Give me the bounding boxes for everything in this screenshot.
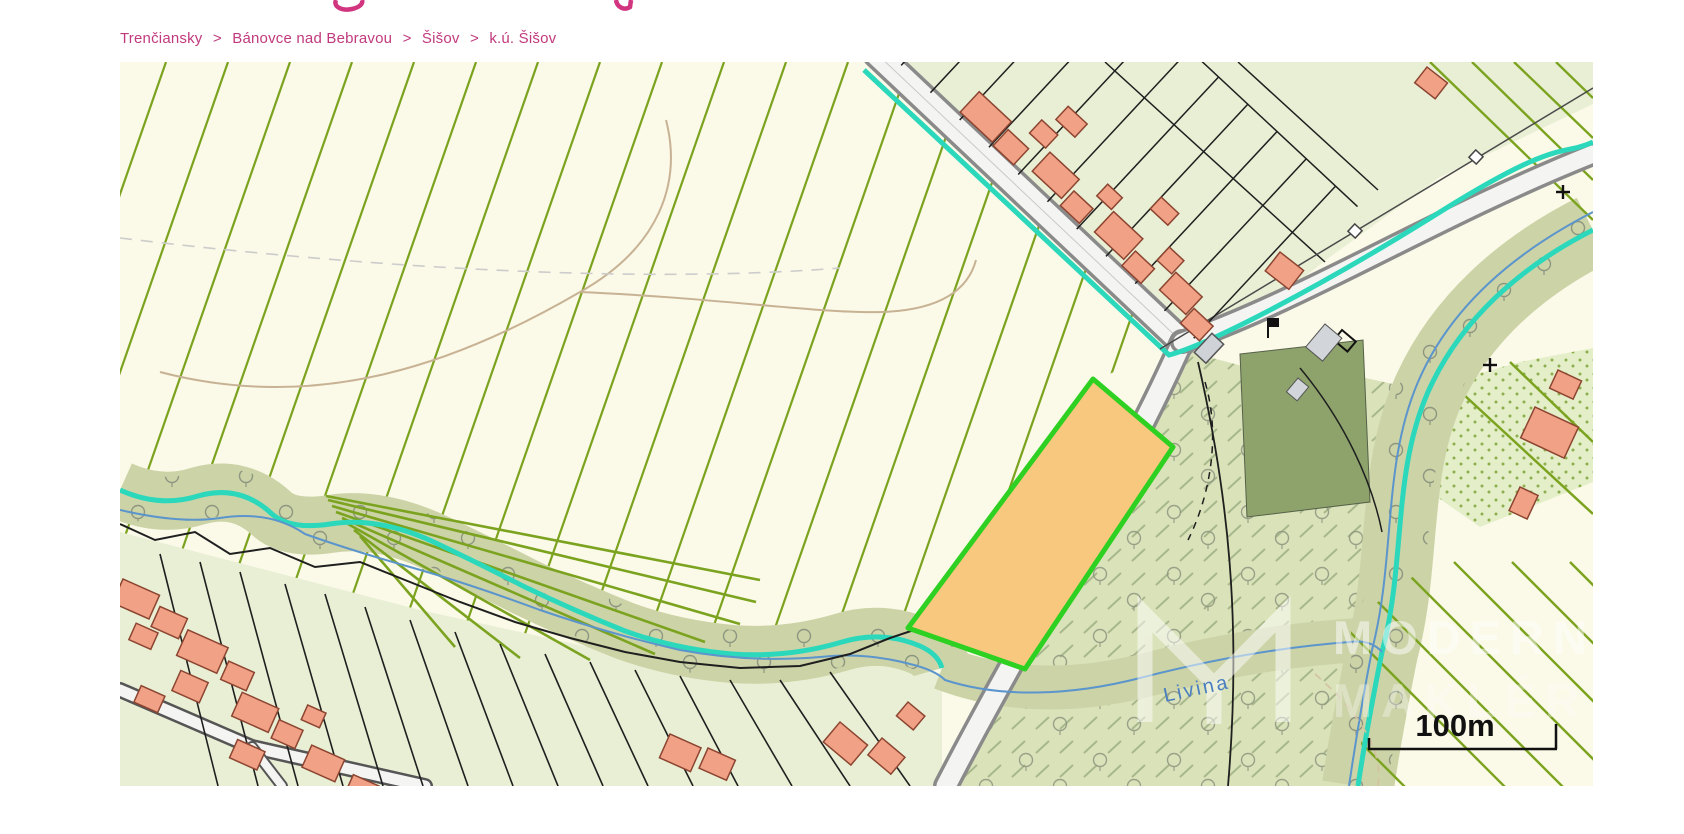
breadcrumb-municipality[interactable]: Šišov	[422, 30, 460, 47]
watermark-text-1: MODERN	[1333, 611, 1593, 664]
breadcrumb-separator: >	[213, 30, 222, 47]
breadcrumb-region[interactable]: Trenčiansky	[120, 30, 203, 47]
breadcrumb-separator: >	[470, 30, 479, 47]
map-canvas[interactable]: MODERN MAKLÉR Livina 100m	[120, 62, 1593, 786]
dark-green-area	[1240, 340, 1370, 517]
breadcrumb: Trenčiansky > Bánovce nad Bebravou > Šiš…	[120, 30, 556, 47]
scale-label: 100m	[1415, 708, 1494, 743]
clipped-heading-glyph	[335, 0, 362, 10]
page: { "breadcrumb": { "items": ["Trenčiansky…	[0, 0, 1684, 834]
clipped-page-title	[0, 0, 700, 16]
cadastral-map[interactable]: MODERN MAKLÉR Livina 100m	[120, 62, 1593, 786]
breadcrumb-district[interactable]: Bánovce nad Bebravou	[232, 30, 392, 47]
clipped-heading-glyph	[616, 0, 631, 9]
breadcrumb-separator: >	[403, 30, 412, 47]
breadcrumb-cadastre[interactable]: k.ú. Šišov	[489, 30, 556, 47]
